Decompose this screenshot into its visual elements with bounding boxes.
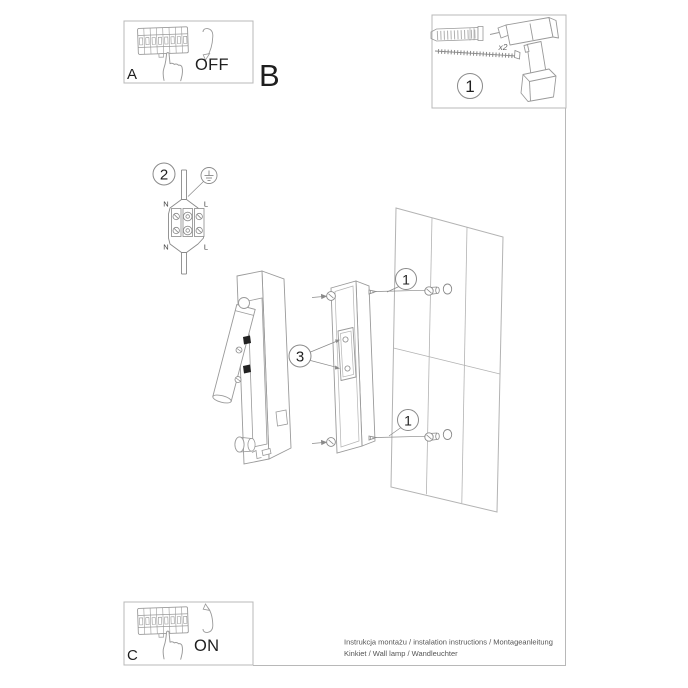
parts-callout: 1: [458, 74, 483, 99]
wall-illustration: 1 1: [387, 208, 503, 512]
lamp-clip-bottom: [243, 365, 251, 374]
footer-line1: Instrukcja montażu / instalation instruc…: [344, 638, 553, 647]
step-2-number: 2: [160, 167, 168, 184]
junction-box: [338, 328, 356, 381]
step-3-number: 3: [296, 349, 304, 366]
wall-callout-top-number: 1: [402, 272, 410, 288]
diagram-canvas: A OFF B x2 1: [0, 0, 688, 688]
parts-callout-number: 1: [465, 77, 474, 96]
lamp-pivot: [239, 298, 250, 309]
lamp-illustration: [212, 271, 291, 464]
wall-callout-bottom-number: 1: [404, 413, 412, 429]
section-b-label: B: [259, 58, 280, 93]
terminal-label-l-bottom: L: [204, 243, 208, 252]
step-2-callout: 2: [153, 163, 175, 185]
wiring-step: 2 N: [153, 163, 217, 274]
wire-top: [182, 170, 187, 200]
parts-box: x2 1: [431, 15, 566, 108]
step-a-label: A: [127, 66, 137, 83]
breaker-panel-icon: [138, 27, 189, 58]
wall-panel: [391, 208, 503, 512]
lamp-clip-top: [243, 336, 251, 345]
terminal-label-n-top: N: [163, 200, 168, 209]
ground-symbol-icon: [188, 168, 217, 197]
on-label: ON: [194, 637, 219, 655]
terminal-label-n-bottom: N: [163, 243, 168, 252]
step-c-box: C ON: [124, 602, 253, 665]
lamp-terminal-cover: [276, 410, 288, 426]
wall-hole-top: [443, 284, 451, 294]
instruction-sheet: A OFF B x2 1: [0, 0, 688, 688]
terminal-block: N L N L: [163, 200, 208, 253]
off-label: OFF: [195, 56, 229, 74]
step-3-callout: 3: [289, 340, 340, 370]
step-c-label: C: [127, 647, 138, 664]
footer-line2: Kinkiet / Wall lamp / Wandleuchter: [344, 649, 458, 658]
step-a-box: A OFF: [124, 21, 253, 83]
wire-bottom: [182, 253, 187, 275]
terminal-label-l-top: L: [204, 200, 208, 209]
wall-hole-bottom: [443, 430, 451, 440]
quantity-label: x2: [498, 42, 508, 52]
breaker-panel-icon: [138, 607, 189, 638]
